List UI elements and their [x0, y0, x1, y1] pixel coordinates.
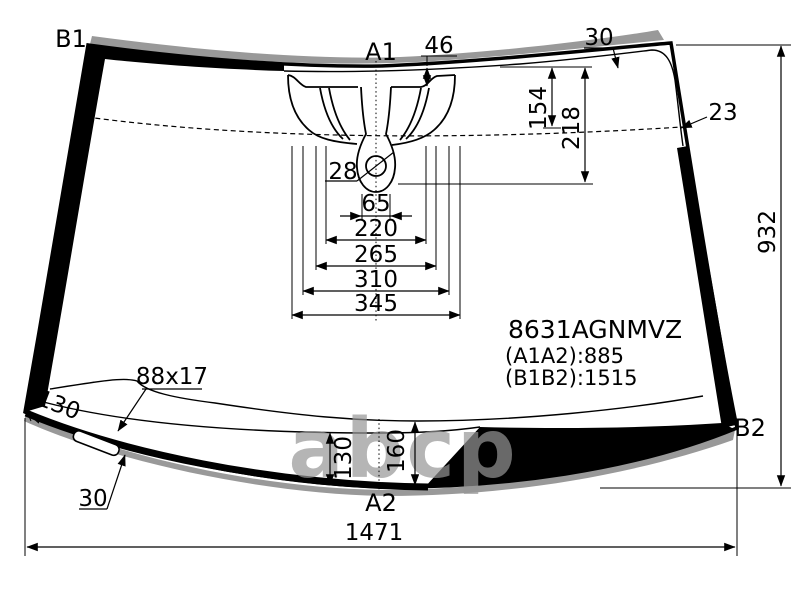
corner-label-b1: B1: [55, 25, 87, 53]
dim-23-label: 23: [708, 100, 737, 126]
windshield-technical-drawing: abcp B1 A1 A2 B2 46: [0, 0, 800, 600]
dim-1471-label: 1471: [345, 520, 404, 546]
windshield-diagram-page: abcp B1 A1 A2 B2 46: [0, 0, 800, 600]
dim-65-label: 65: [361, 191, 390, 217]
dim-30-top-label: 30: [584, 25, 613, 51]
dim-220-label: 220: [354, 216, 398, 242]
dim-310-label: 310: [354, 267, 398, 293]
dim-154-label: 154: [526, 86, 552, 130]
part-code: 8631AGNMVZ: [508, 315, 682, 344]
dim-88x17-label: 88x17: [136, 364, 208, 390]
dim-265-label: 265: [354, 242, 398, 268]
dim-46-label: 46: [424, 33, 453, 59]
corner-label-a1: A1: [365, 38, 397, 66]
dim-345-label: 345: [354, 291, 398, 317]
dim-218-label: 218: [559, 106, 585, 150]
dim-28-label: 28: [328, 159, 357, 185]
leader-30-bottom: [107, 455, 125, 509]
dim-130-bottom-label: 130: [331, 436, 357, 480]
dim-160-bottom-label: 160: [384, 429, 410, 473]
corner-label-b2: B2: [734, 414, 766, 442]
dim-932-label: 932: [755, 210, 781, 254]
dim-a1a2-text: (A1A2):885: [505, 344, 624, 368]
dim-30-bottom-label: 30: [78, 486, 107, 512]
dim-b1b2-text: (B1B2):1515: [505, 366, 637, 390]
corner-label-a2: A2: [365, 489, 397, 517]
